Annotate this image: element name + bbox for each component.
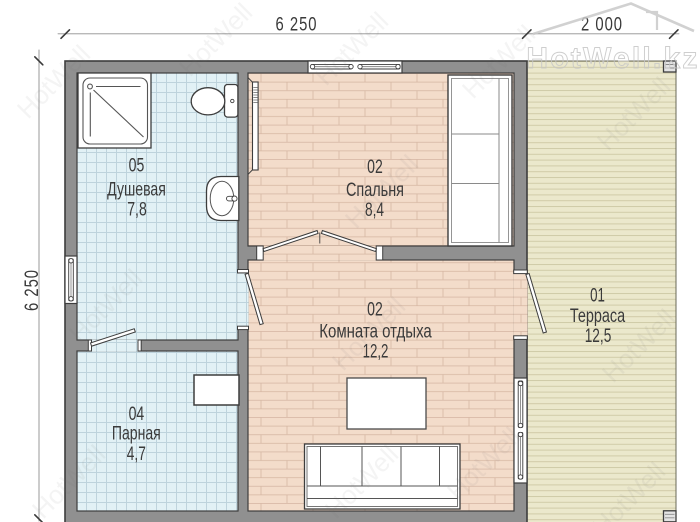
svg-text:Парная: Парная [112, 423, 161, 445]
svg-text:Терраса: Терраса [570, 305, 626, 326]
svg-text:6 250: 6 250 [21, 269, 42, 311]
svg-text:7,8: 7,8 [127, 198, 147, 220]
svg-text:Душевая: Душевая [107, 178, 166, 200]
svg-text:6 250: 6 250 [275, 14, 317, 35]
svg-text:HotWell.kz: HotWell.kz [526, 42, 699, 75]
svg-text:01: 01 [590, 285, 605, 306]
svg-text:4,7: 4,7 [127, 443, 146, 465]
svg-text:12,5: 12,5 [585, 325, 612, 347]
svg-text:04: 04 [129, 403, 145, 425]
svg-text:05: 05 [129, 154, 145, 176]
